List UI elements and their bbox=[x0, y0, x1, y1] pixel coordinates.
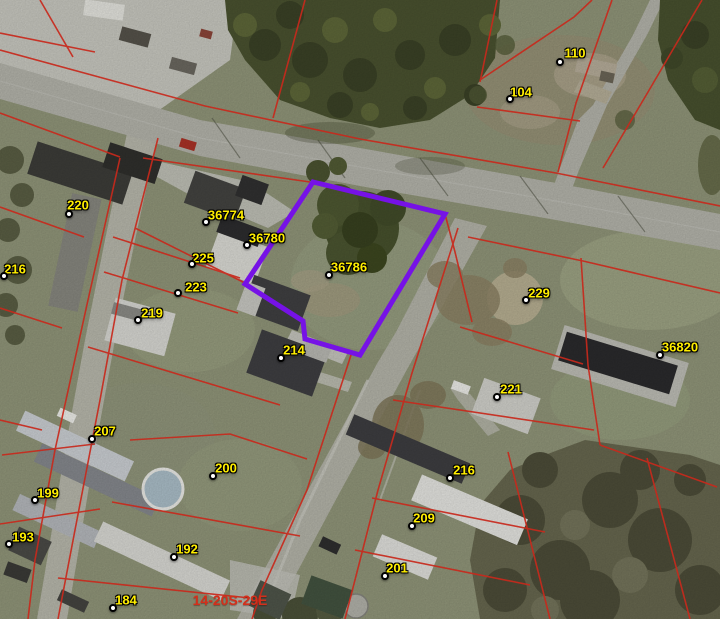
map-viewport[interactable]: 1101042203677436780225216223219367862293… bbox=[0, 0, 720, 619]
aerial-basemap[interactable] bbox=[0, 0, 720, 619]
photo-noise-overlay bbox=[0, 0, 720, 619]
section-township-range-label: 14-20S-29E bbox=[193, 593, 268, 607]
